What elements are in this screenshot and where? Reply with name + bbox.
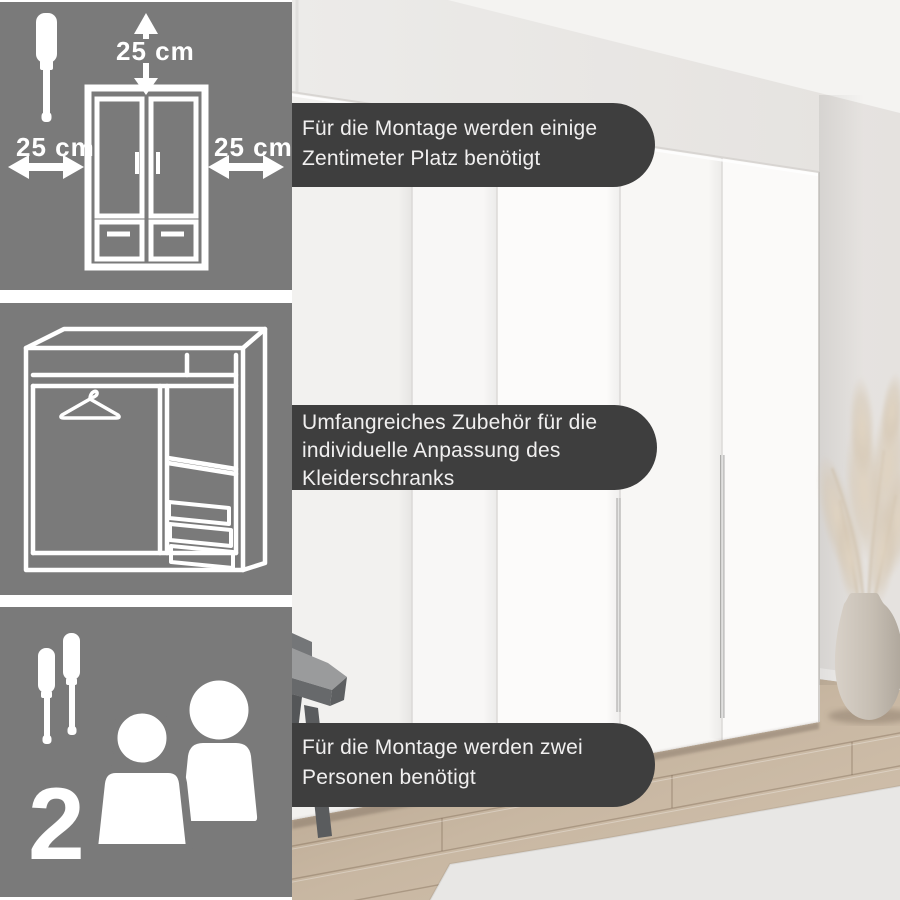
- banner-line: Für die Montage werden einige: [302, 114, 655, 144]
- clearance-label-left: 25 cm: [16, 132, 95, 163]
- panel-assembly: 2: [0, 607, 292, 897]
- product-infographic: Für die Montage werden einige Zentimeter…: [0, 0, 900, 900]
- clearance-label-top: 25 cm: [116, 36, 195, 67]
- panel-interior: [0, 303, 292, 595]
- door-handle: [720, 455, 725, 718]
- banner-line: Personen benötigt: [302, 763, 655, 793]
- wardrobe-door: [722, 157, 819, 740]
- hanger-icon: [61, 391, 119, 418]
- banner-line: Zentimeter Platz benötigt: [302, 144, 655, 174]
- person-back: [182, 681, 257, 822]
- wardrobe-interior-diagram: [0, 303, 292, 595]
- banner-line: Für die Montage werden zwei: [302, 733, 655, 763]
- person-front: [94, 710, 189, 849]
- banner-line: Umfangreiches Zubehör für die: [302, 409, 657, 437]
- banner-accessories: Umfangreiches Zubehör für die individuel…: [292, 405, 657, 490]
- screwdriver-icon: [36, 13, 57, 122]
- panel-clearance: 25 cm 25 cm 25 cm: [0, 2, 292, 290]
- vase: [835, 593, 900, 720]
- door-handle: [617, 498, 621, 712]
- drawers-icon: [169, 502, 233, 568]
- banner-two-persons: Für die Montage werden zwei Personen ben…: [292, 723, 655, 807]
- screwdrivers-icon: [38, 633, 80, 744]
- wardrobe-front-diagram: [88, 88, 205, 267]
- person-count: 2: [28, 773, 85, 875]
- banner-space: Für die Montage werden einige Zentimeter…: [292, 103, 655, 187]
- banner-line: Kleiderschranks: [302, 465, 657, 493]
- clearance-label-right: 25 cm: [214, 132, 293, 163]
- banner-line: individuelle Anpassung des: [302, 437, 657, 465]
